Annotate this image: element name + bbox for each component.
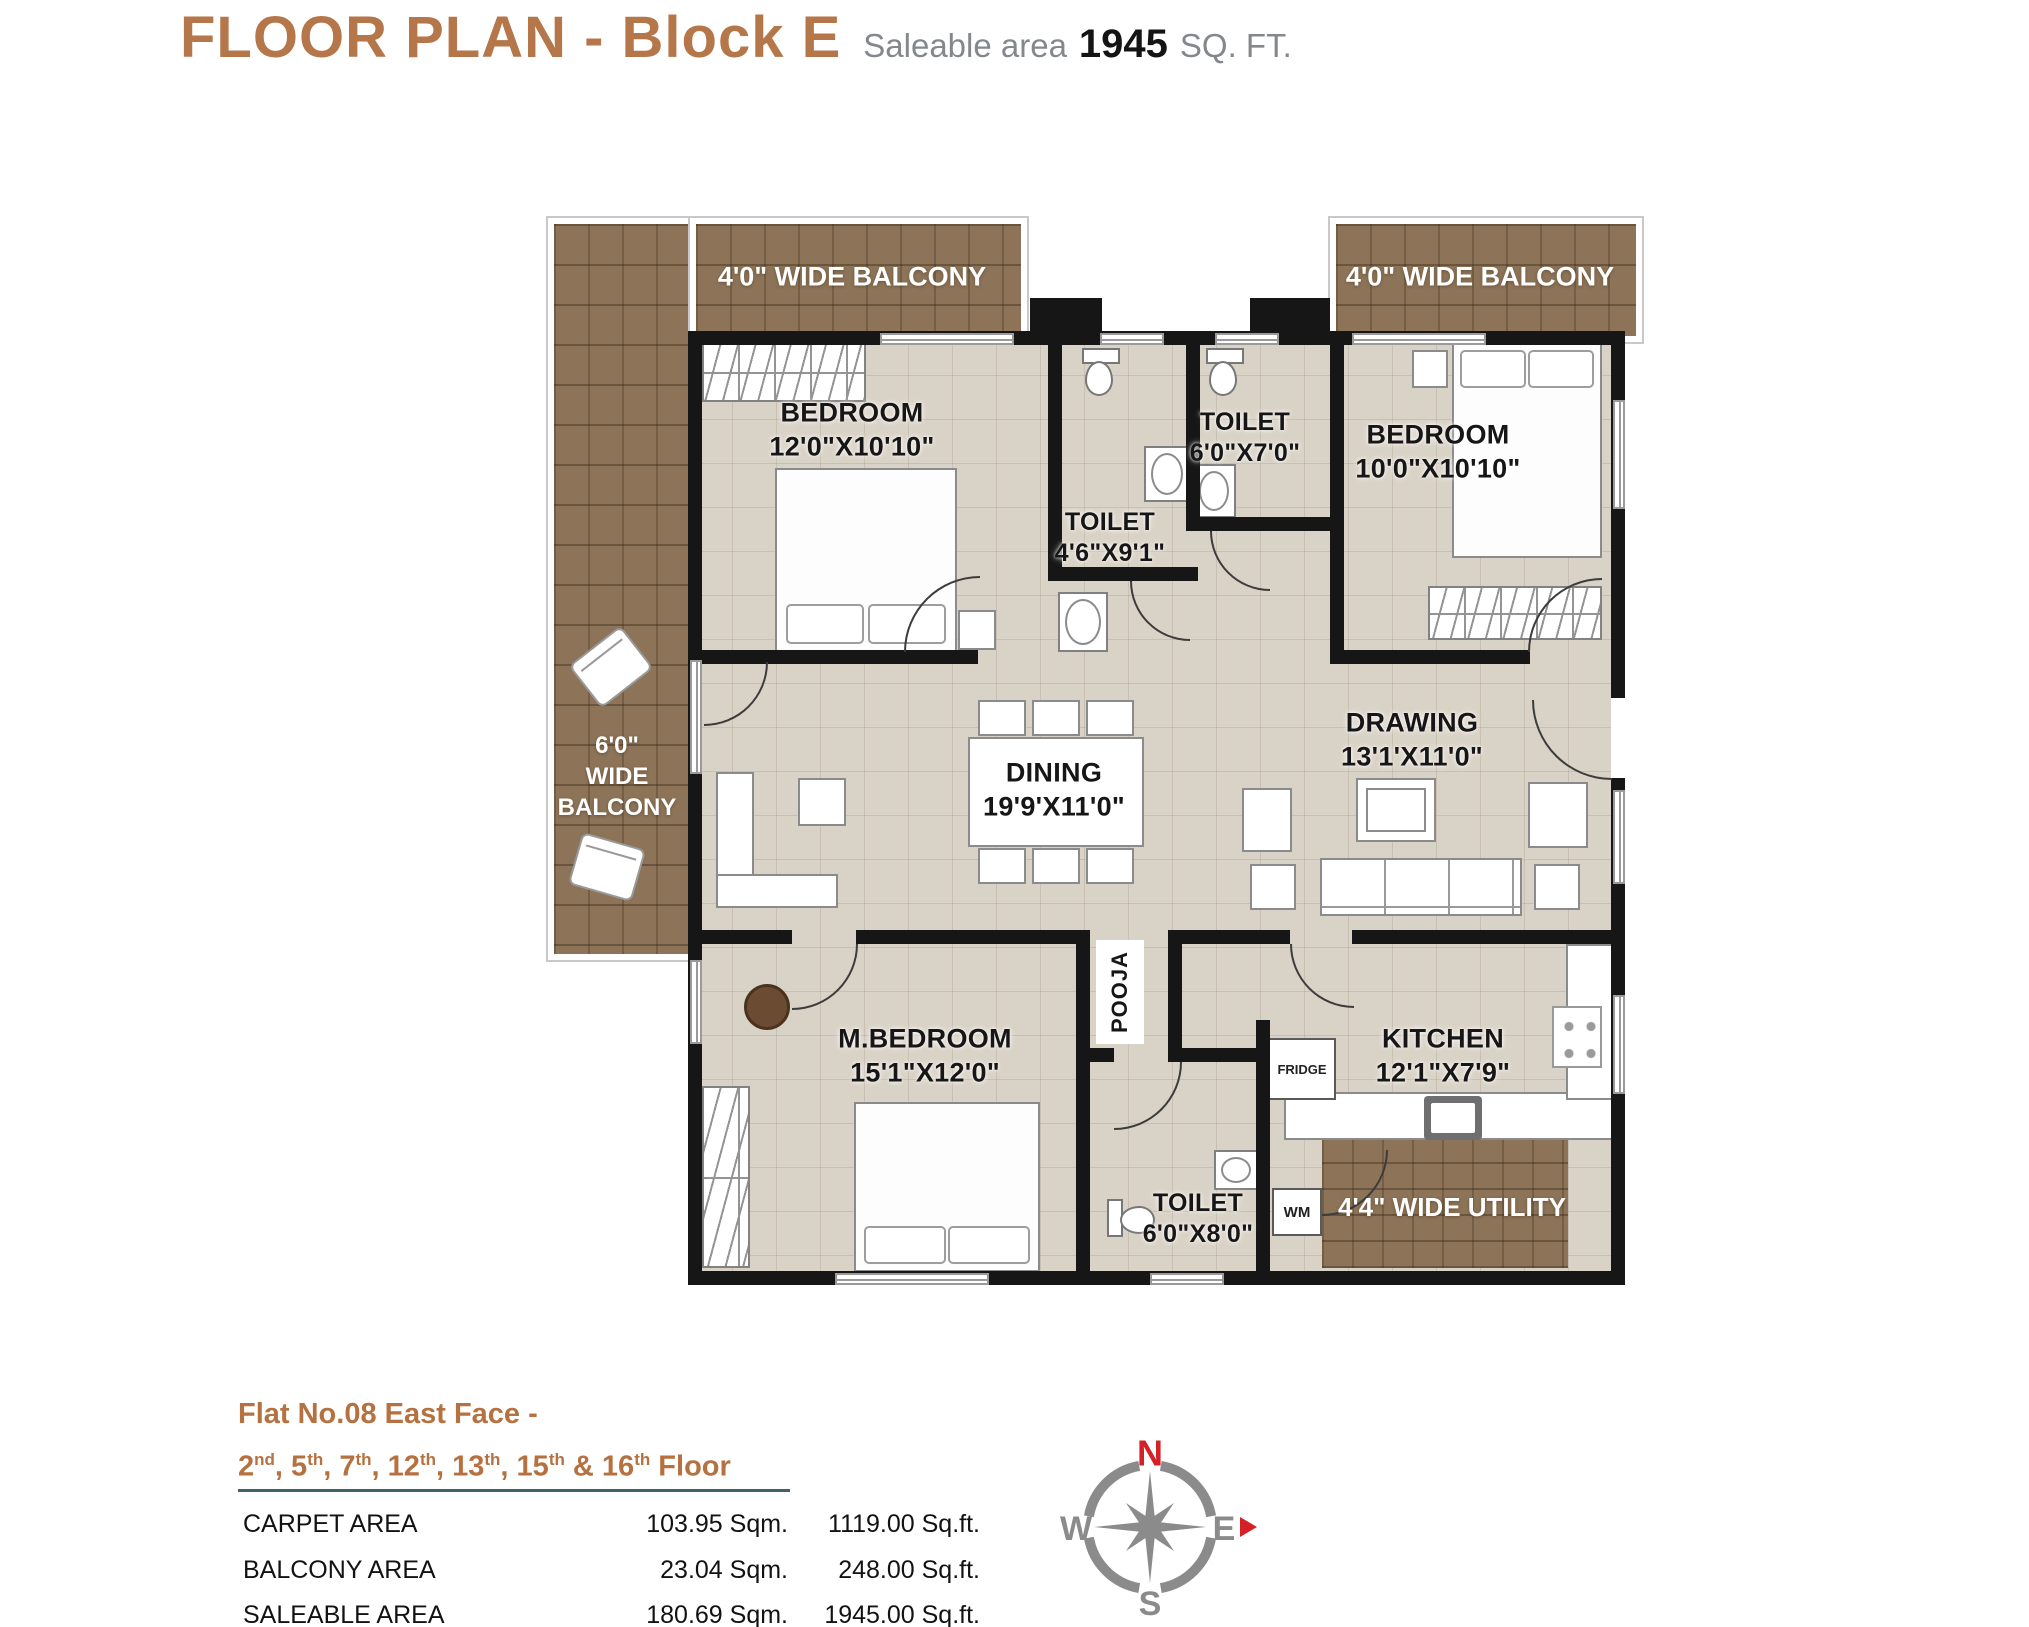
room-label-bedroom-1: BEDROOM 12'0"X10'10": [769, 396, 934, 464]
row-sqft: 1945.00 Sq.ft.: [565, 1601, 980, 1627]
wall: [856, 930, 1090, 944]
room-dims: 10'0"X10'10": [1355, 452, 1520, 486]
flat-info: Flat No.08 East Face - 2nd, 5th, 7th, 12…: [238, 1392, 731, 1490]
wall: [688, 930, 792, 944]
dresser-chair: [744, 984, 790, 1030]
center-table-inner: [1366, 788, 1426, 832]
room-label-toilet-1: TOILET 4'6"X9'1": [1055, 507, 1166, 570]
row-label: BALCONY AREA: [243, 1556, 436, 1585]
room-name: KITCHEN: [1376, 1022, 1511, 1056]
wall: [1186, 517, 1344, 531]
saleable-area-label: Saleable area: [863, 27, 1067, 65]
window: [1613, 400, 1625, 509]
compass-south-label: S: [1139, 1585, 1162, 1623]
flat-info-floors: 2nd, 5th, 7th, 12th, 13th, 15th & 16th F…: [238, 1437, 731, 1490]
fridge-box: FRIDGE: [1268, 1038, 1336, 1100]
wardrobe: [702, 1086, 750, 1268]
flat-info-line1: Flat No.08 East Face -: [238, 1392, 731, 1437]
toilet-wc: [1206, 348, 1240, 396]
washbasin: [1144, 446, 1190, 502]
room-name: BEDROOM: [769, 396, 934, 430]
pillow: [948, 1226, 1030, 1264]
tv-unit: [1242, 788, 1292, 852]
window: [690, 660, 702, 774]
bedside-table: [1412, 350, 1448, 388]
compass-rose: N E S W: [1020, 1424, 1280, 1627]
room-name: M.BEDROOM: [838, 1022, 1012, 1056]
side-table: [1250, 864, 1296, 910]
dining-chair: [978, 700, 1026, 736]
room-name: BEDROOM: [1355, 418, 1520, 452]
window: [690, 960, 702, 1044]
saleable-area-unit: SQ. FT.: [1180, 27, 1292, 65]
room-dims: 13'1'X11'0": [1341, 740, 1483, 774]
dining-chair: [978, 848, 1026, 884]
room-dims: 19'9'X11'0": [983, 790, 1125, 824]
room-label-toilet-3: TOILET 6'0"X8'0": [1143, 1188, 1254, 1251]
row-sqft: 1119.00 Sq.ft.: [565, 1510, 980, 1539]
room-name: DINING: [983, 756, 1125, 790]
room-dims: 12'1"X7'9": [1376, 1056, 1511, 1090]
window: [1352, 333, 1486, 345]
dining-chair: [1032, 700, 1080, 736]
balcony-label-top-left: 4'0" WIDE BALCONY: [718, 259, 986, 294]
row-label: SALEABLE AREA: [243, 1601, 445, 1627]
saleable-area: Saleable area 1945 SQ. FT.: [863, 22, 1291, 67]
room-dims: 4'6"X9'1": [1055, 538, 1166, 569]
side-table: [1534, 864, 1580, 910]
toilet-wc: [1082, 348, 1116, 396]
entrance-opening: [1611, 698, 1625, 778]
crockery-unit: [716, 874, 838, 908]
wm-label: WM: [1284, 1204, 1311, 1221]
pillow: [786, 604, 864, 644]
hob-icon: [1552, 1006, 1602, 1068]
wall: [688, 331, 702, 1285]
kitchen-sink: [1424, 1096, 1482, 1140]
sofa: [1320, 858, 1522, 916]
table-row-carpet-area: CARPET AREA 103.95 Sqm. 1119.00 Sq.ft.: [243, 1510, 743, 1546]
wall: [1330, 331, 1344, 664]
utility-label: 4'4" WIDE UTILITY: [1338, 1191, 1566, 1225]
balcony-left-line3: BALCONY: [558, 793, 677, 824]
wardrobe: [702, 342, 866, 402]
compass-east-label: E: [1213, 1510, 1236, 1548]
balcony-label-left: 6'0" WIDE BALCONY: [558, 730, 677, 824]
window: [835, 1273, 989, 1285]
page-title: FLOOR PLAN - Block E: [180, 4, 841, 71]
washbasin: [1058, 592, 1108, 652]
room-label-toilet-2: TOILET 6'0"X7'0": [1190, 407, 1301, 470]
room-name: DRAWING: [1341, 706, 1483, 740]
compass-star-icon: [1094, 1471, 1206, 1583]
divider-rule: [238, 1489, 790, 1492]
pillow: [864, 1226, 946, 1264]
dining-chair: [1086, 700, 1134, 736]
washbasin: [1214, 1150, 1258, 1190]
pooja-room: POOJA: [1096, 940, 1144, 1044]
wall: [1256, 1020, 1270, 1285]
compass-west-label: W: [1060, 1510, 1093, 1548]
wall: [1250, 298, 1330, 332]
floor-plan-page: FLOOR PLAN - Block E Saleable area 1945 …: [0, 0, 2029, 1627]
wall: [1168, 930, 1182, 1062]
room-dims: 15'1"X12'0": [838, 1056, 1012, 1090]
room-name: TOILET: [1190, 407, 1301, 438]
bed: [854, 1102, 1040, 1272]
wall: [1330, 650, 1530, 664]
washing-machine-box: WM: [1272, 1188, 1322, 1236]
balcony-label-top-right: 4'0" WIDE BALCONY: [1346, 259, 1614, 294]
window: [1215, 333, 1279, 345]
pillow: [1460, 350, 1526, 388]
table-row-balcony-area: BALCONY AREA 23.04 Sqm. 248.00 Sq.ft.: [243, 1556, 743, 1592]
table-row-saleable-area: SALEABLE AREA 180.69 Sqm. 1945.00 Sq.ft.: [243, 1601, 743, 1627]
room-dims: 6'0"X8'0": [1143, 1219, 1254, 1250]
room-dims: 6'0"X7'0": [1190, 438, 1301, 469]
window: [1100, 333, 1164, 345]
window: [880, 333, 1014, 345]
pooja-label: POOJA: [1107, 951, 1133, 1033]
stool: [798, 778, 846, 826]
wall: [1168, 930, 1290, 944]
compass-north-label: N: [1137, 1433, 1163, 1474]
room-label-dining: DINING 19'9'X11'0": [983, 756, 1125, 824]
center-table: [1356, 778, 1436, 842]
dining-chair: [1086, 848, 1134, 884]
row-sqft: 248.00 Sq.ft.: [565, 1556, 980, 1585]
pillow: [1528, 350, 1594, 388]
wall: [1076, 930, 1090, 1285]
room-label-kitchen: KITCHEN 12'1"X7'9": [1376, 1022, 1511, 1090]
room-label-drawing: DRAWING 13'1'X11'0": [1341, 706, 1483, 774]
wall: [1030, 298, 1102, 332]
room-label-bedroom-2: BEDROOM 10'0"X10'10": [1355, 418, 1520, 486]
window: [1613, 790, 1625, 884]
saleable-area-value: 1945: [1079, 22, 1168, 67]
room-name: TOILET: [1055, 507, 1166, 538]
fridge-label: FRIDGE: [1277, 1062, 1326, 1077]
room-dims: 12'0"X10'10": [769, 430, 934, 464]
row-label: CARPET AREA: [243, 1510, 418, 1539]
window: [1613, 995, 1625, 1094]
header: FLOOR PLAN - Block E Saleable area 1945 …: [180, 4, 1292, 71]
wall: [1352, 930, 1625, 944]
window: [1150, 1273, 1224, 1285]
compass-east-arrow-icon: [1240, 1517, 1257, 1537]
dining-chair: [1032, 848, 1080, 884]
room-label-master-bedroom: M.BEDROOM 15'1"X12'0": [838, 1022, 1012, 1090]
wall: [1090, 1048, 1114, 1062]
balcony-left-line1: 6'0": [558, 730, 677, 761]
room-name: TOILET: [1143, 1188, 1254, 1219]
balcony-left-line2: WIDE: [558, 761, 677, 792]
armchair: [1528, 782, 1588, 848]
